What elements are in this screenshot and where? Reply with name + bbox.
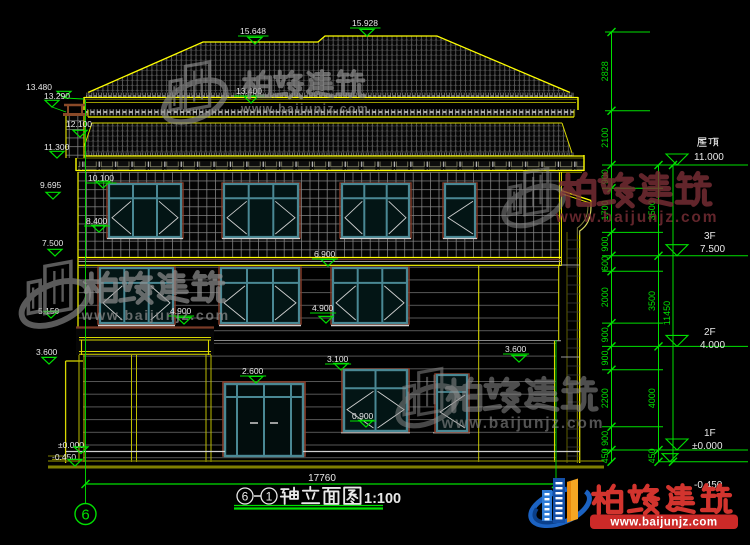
svg-text:900: 900 xyxy=(600,431,610,446)
svg-text:2828: 2828 xyxy=(600,61,610,81)
svg-text:-0.450: -0.450 xyxy=(52,452,76,462)
svg-text:1: 1 xyxy=(266,490,273,504)
svg-text:11.300: 11.300 xyxy=(44,142,70,152)
svg-text:900: 900 xyxy=(600,327,610,342)
svg-text:15.928: 15.928 xyxy=(352,18,378,28)
svg-text:4000: 4000 xyxy=(647,388,657,408)
svg-text:6: 6 xyxy=(242,490,249,504)
svg-text:0.900: 0.900 xyxy=(352,411,374,421)
svg-text:7.500: 7.500 xyxy=(700,244,725,255)
svg-text:17760: 17760 xyxy=(308,473,336,484)
svg-text:11450: 11450 xyxy=(662,301,672,325)
svg-text:2.600: 2.600 xyxy=(242,366,264,376)
svg-text:4.000: 4.000 xyxy=(700,340,725,351)
svg-text:±0.000: ±0.000 xyxy=(692,441,723,452)
svg-text:1:100: 1:100 xyxy=(364,491,401,507)
svg-text:www.baijunjz.com: www.baijunjz.com xyxy=(555,209,719,226)
svg-text:3.600: 3.600 xyxy=(505,344,527,354)
svg-text:www.baijunjz.com: www.baijunjz.com xyxy=(81,307,230,323)
svg-text:1F: 1F xyxy=(704,428,716,439)
svg-text:www.baijunjz.com: www.baijunjz.com xyxy=(609,517,717,529)
svg-text:6.900: 6.900 xyxy=(314,249,336,259)
svg-text:13.290: 13.290 xyxy=(44,91,70,101)
svg-text:3.100: 3.100 xyxy=(327,354,349,364)
svg-text:2F: 2F xyxy=(704,327,716,338)
svg-text:www.baijunjz.com: www.baijunjz.com xyxy=(441,415,605,432)
svg-text:2100: 2100 xyxy=(600,128,610,148)
svg-text:7.500: 7.500 xyxy=(42,238,64,248)
svg-text:4.900: 4.900 xyxy=(312,303,334,313)
svg-text:450: 450 xyxy=(600,448,610,463)
svg-text:11.000: 11.000 xyxy=(694,152,724,163)
svg-text:2200: 2200 xyxy=(600,388,610,408)
svg-text:900: 900 xyxy=(600,237,610,252)
svg-text:2000: 2000 xyxy=(600,287,610,307)
svg-text:15.648: 15.648 xyxy=(240,26,266,36)
svg-text:3.600: 3.600 xyxy=(36,347,58,357)
svg-text:12.100: 12.100 xyxy=(66,119,92,129)
svg-text:8.400: 8.400 xyxy=(86,216,108,226)
svg-text:±0.000: ±0.000 xyxy=(58,440,84,450)
svg-text:600: 600 xyxy=(600,256,610,271)
svg-text:www.baijunjz.com: www.baijunjz.com xyxy=(240,101,369,115)
svg-text:3500: 3500 xyxy=(647,291,657,311)
svg-text:450: 450 xyxy=(647,448,657,463)
svg-text:9.695: 9.695 xyxy=(40,180,62,190)
svg-text:3F: 3F xyxy=(704,231,716,242)
svg-text:6: 6 xyxy=(81,507,89,524)
svg-text:900: 900 xyxy=(600,350,610,365)
